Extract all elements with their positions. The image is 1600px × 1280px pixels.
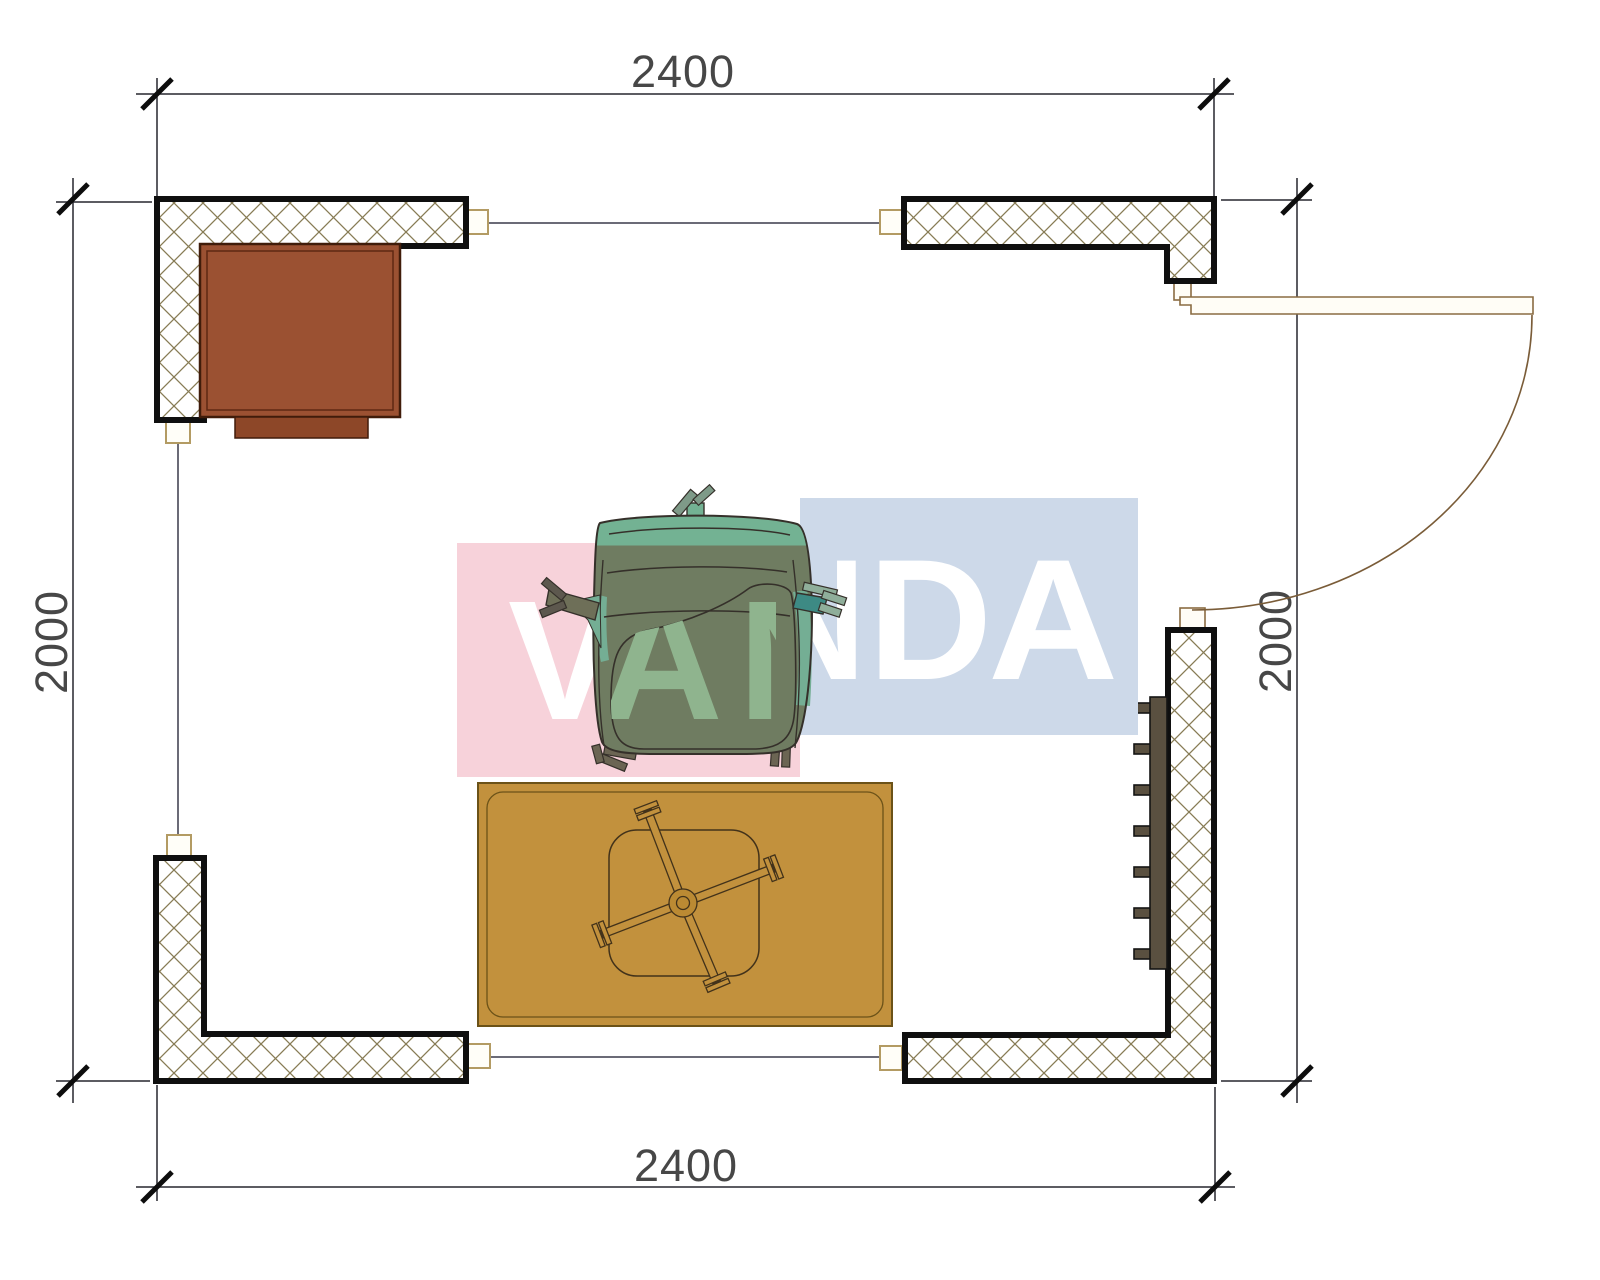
svg-text:2400: 2400	[634, 1140, 738, 1191]
svg-text:A: A	[988, 524, 1118, 716]
svg-text:2000: 2000	[26, 590, 77, 694]
svg-text:2400: 2400	[631, 46, 735, 97]
svg-text:D: D	[868, 524, 992, 716]
